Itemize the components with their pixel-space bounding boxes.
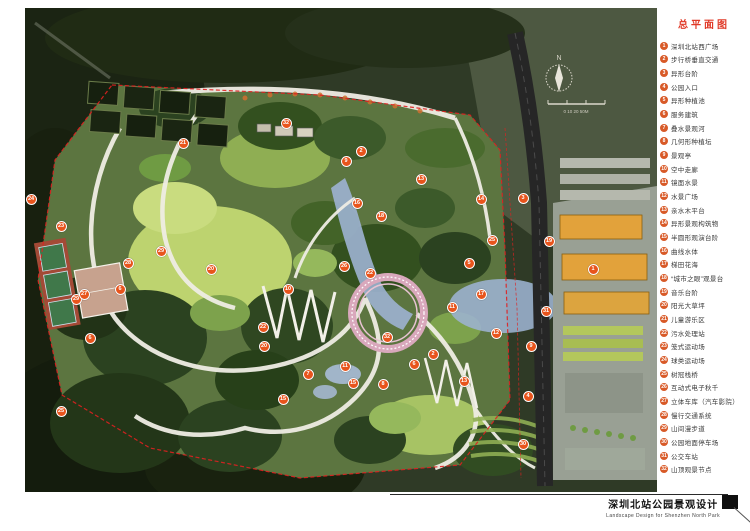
compass-north-label: N (556, 55, 561, 62)
legend-item: 21儿童游乐区 (660, 312, 750, 326)
legend-item: 19音乐台阶 (660, 285, 750, 299)
legend-number-badge: 4 (660, 83, 668, 91)
legend-item: 25树冠栈桥 (660, 367, 750, 381)
legend-item: 5异形种植池 (660, 94, 750, 108)
legend-label: 深圳北站西广场 (671, 41, 719, 51)
legend-number-badge: 12 (660, 192, 668, 200)
legend-number-badge: 16 (660, 247, 668, 255)
footer-title-block: 深圳北站公园景观设计 Landscape Design for Shenzhen… (606, 496, 720, 519)
legend-number-badge: 10 (660, 165, 668, 173)
legend-number-badge: 24 (660, 356, 668, 364)
legend-label: 亲水木平台 (671, 205, 705, 215)
legend-number-badge: 15 (660, 233, 668, 241)
legend-item: 27立体车库（汽车影院） (660, 394, 750, 408)
legend-item: 9景观亭 (660, 148, 750, 162)
legend-label: 服务建筑 (671, 109, 698, 119)
legend-label: 音乐台阶 (671, 287, 698, 297)
legend-item: 1深圳北站西广场 (660, 39, 750, 53)
legend-number-badge: 8 (660, 137, 668, 145)
master-plan-drawing: N 0 10 20 50M (25, 8, 657, 492)
project-title-en: Landscape Design for Shenzhen North Park (606, 513, 720, 519)
legend-label: 异形种植池 (671, 95, 705, 105)
legend-number-badge: 18 (660, 274, 668, 282)
project-title-cn: 深圳北站公园景观设计 (606, 496, 720, 511)
legend-label: 空中走廊 (671, 164, 698, 174)
legend-label: 儿童游乐区 (671, 314, 705, 324)
legend-number-badge: 17 (660, 260, 668, 268)
legend-item: 12水景广场 (660, 189, 750, 203)
legend-item: 32山顶观景节点 (660, 462, 750, 476)
legend-number-badge: 5 (660, 96, 668, 104)
legend-item: 2步行桥垂直交通 (660, 53, 750, 67)
legend-label: 立体车库（汽车影院） (671, 396, 739, 406)
legend-label: 半圆形观演台阶 (671, 232, 719, 242)
legend-number-badge: 7 (660, 124, 668, 132)
legend-label: “城市之眼”观景台 (671, 273, 724, 283)
legend-item: 7叠水景观河 (660, 121, 750, 135)
legend-number-badge: 28 (660, 411, 668, 419)
legend-number-badge: 32 (660, 465, 668, 473)
legend-item: 18“城市之眼”观景台 (660, 271, 750, 285)
legend-number-badge: 23 (660, 342, 668, 350)
legend-label: 几何形种植坛 (671, 136, 712, 146)
plan-sheet-page: N 0 10 20 50M 21322913143161826221022202… (0, 0, 750, 531)
legend-item: 29山间漫步道 (660, 421, 750, 435)
legend-number-badge: 30 (660, 438, 668, 446)
legend-label: 水景广场 (671, 191, 698, 201)
legend-number-badge: 14 (660, 219, 668, 227)
legend-label: 叠水景观河 (671, 123, 705, 133)
legend-item: 28慢行交通系统 (660, 408, 750, 422)
legend-number-badge: 19 (660, 288, 668, 296)
legend-number-badge: 20 (660, 301, 668, 309)
plaza-tree-rows (560, 158, 650, 200)
footer-diagonal-line (734, 507, 750, 528)
legend-label: 山顶观景节点 (671, 464, 712, 474)
station-buildings (560, 215, 649, 314)
legend-number-badge: 21 (660, 315, 668, 323)
legend-number-badge: 9 (660, 151, 668, 159)
sheet-title: 总平面图 (678, 16, 730, 31)
legend-label: 公交车站 (671, 451, 698, 461)
legend-item: 14异形景观构筑物 (660, 217, 750, 231)
legend-label: 曲线水体 (671, 246, 698, 256)
legend-number-badge: 31 (660, 452, 668, 460)
legend-label: 污水处理站 (671, 328, 705, 338)
legend-item: 8几何形种植坛 (660, 135, 750, 149)
legend-item: 13亲水木平台 (660, 203, 750, 217)
legend-item: 30公园地面停车场 (660, 435, 750, 449)
legend-number-badge: 3 (660, 69, 668, 77)
footer-divider (390, 494, 728, 495)
scale-bar-label: 0 10 20 50M (563, 109, 588, 114)
legend-item: 22污水处理站 (660, 326, 750, 340)
legend-label: 互动式电子秋千 (671, 382, 719, 392)
legend-label: 景观亭 (671, 150, 691, 160)
legend-item: 24球类运动场 (660, 353, 750, 367)
legend-label: 公园入口 (671, 82, 698, 92)
legend-number-badge: 13 (660, 206, 668, 214)
legend-label: 山间漫步道 (671, 423, 705, 433)
legend-number-badge: 22 (660, 329, 668, 337)
legend-label: 异形台阶 (671, 68, 698, 78)
legend-label: 阳光大草坪 (671, 300, 705, 310)
legend-label: 球类运动场 (671, 355, 705, 365)
legend-item: 10空中走廊 (660, 162, 750, 176)
mirror-pool (325, 364, 361, 384)
legend-item: 23笼式运动场 (660, 339, 750, 353)
legend-number-badge: 26 (660, 383, 668, 391)
legend-number-badge: 25 (660, 370, 668, 378)
legend-item: 11镜面水景 (660, 176, 750, 190)
legend-item: 6服务建筑 (660, 107, 750, 121)
legend-label: 慢行交通系统 (671, 410, 712, 420)
studio-logo (722, 495, 738, 509)
legend-item: 15半圆形观演台阶 (660, 230, 750, 244)
legend-label: 步行桥垂直交通 (671, 54, 719, 64)
legend-item: 3异形台阶 (660, 66, 750, 80)
plaza-planting-rows (563, 326, 645, 470)
legend-item: 20阳光大草坪 (660, 298, 750, 312)
legend-label: 笼式运动场 (671, 341, 705, 351)
legend-label: 公园地面停车场 (671, 437, 719, 447)
legend-item: 4公园入口 (660, 80, 750, 94)
legend-item: 17梯田花海 (660, 258, 750, 272)
legend: 1深圳北站西广场2步行桥垂直交通3异形台阶4公园入口5异形种植池6服务建筑7叠水… (660, 39, 750, 476)
legend-number-badge: 6 (660, 110, 668, 118)
legend-item: 16曲线水体 (660, 244, 750, 258)
legend-item: 31公交车站 (660, 449, 750, 463)
legend-label: 梯田花海 (671, 259, 698, 269)
legend-number-badge: 1 (660, 42, 668, 50)
legend-number-badge: 29 (660, 424, 668, 432)
legend-label: 树冠栈桥 (671, 369, 698, 379)
legend-item: 26互动式电子秋千 (660, 380, 750, 394)
legend-number-badge: 2 (660, 55, 668, 63)
legend-label: 异形景观构筑物 (671, 218, 719, 228)
park-area (34, 81, 557, 478)
legend-number-badge: 11 (660, 178, 668, 186)
legend-label: 镜面水景 (671, 177, 698, 187)
legend-number-badge: 27 (660, 397, 668, 405)
